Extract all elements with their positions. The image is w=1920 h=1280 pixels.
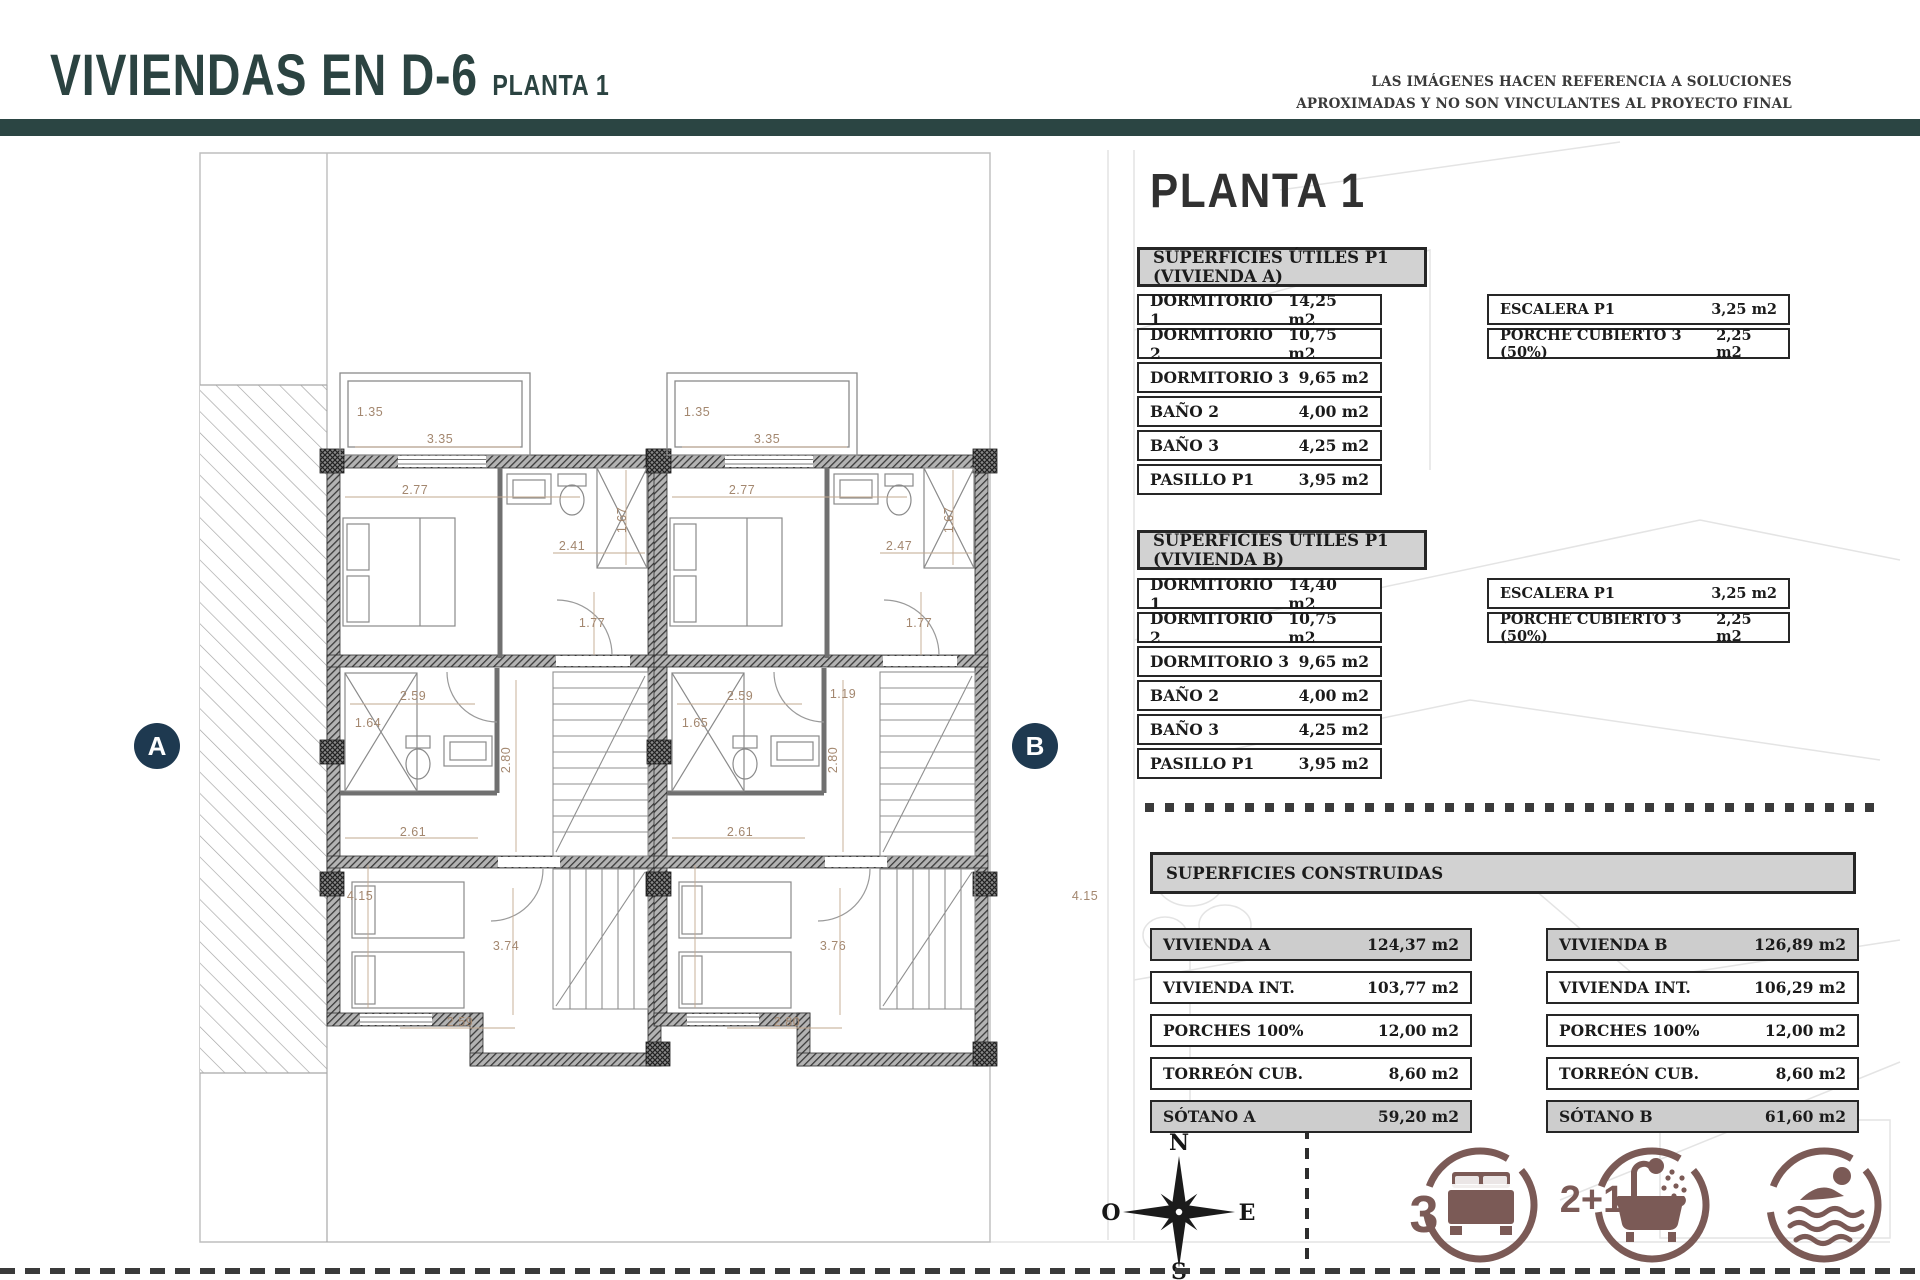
row-value: 9,65 m2: [1299, 652, 1369, 671]
table-row: DORMITORIO 2 10,75 m2: [1137, 328, 1382, 359]
row-label: VIVIENDA INT.: [1559, 978, 1691, 997]
table-row: PASILLO P1 3,95 m2: [1137, 748, 1382, 779]
svg-text:1.77: 1.77: [906, 616, 932, 630]
row-value: 4,25 m2: [1299, 436, 1369, 455]
row-label: DORMITORIO 1: [1150, 291, 1288, 329]
row-label: TORREÓN CUB.: [1559, 1064, 1699, 1083]
table-row: BAÑO 2 4,00 m2: [1137, 396, 1382, 427]
svg-text:2.59: 2.59: [447, 1015, 473, 1029]
table-a-side-rows: ESCALERA P1 3,25 m2 PORCHE CUBIERTO 3 (5…: [1487, 294, 1790, 362]
row-value: 4,25 m2: [1299, 720, 1369, 739]
row-value: 9,65 m2: [1299, 368, 1369, 387]
svg-text:1.67: 1.67: [942, 507, 956, 533]
table-row: VIVIENDA INT. 106,29 m2: [1546, 971, 1859, 1004]
row-label: SÓTANO A: [1163, 1107, 1256, 1126]
row-label: BAÑO 3: [1150, 436, 1219, 455]
table-row: BAÑO 2 4,00 m2: [1137, 680, 1382, 711]
bathrooms-count: 2+1: [1560, 1179, 1624, 1221]
svg-text:2.61: 2.61: [727, 825, 753, 839]
table-a-header: SUPERFICIES ÚTILES P1 (VIVIENDA A): [1137, 247, 1427, 287]
table-row: ESCALERA P1 3,25 m2: [1487, 294, 1790, 325]
slope-hatch-strip: [200, 385, 327, 1242]
svg-text:3.76: 3.76: [820, 939, 846, 953]
svg-text:B: B: [1026, 731, 1045, 761]
row-value: 10,75 m2: [1288, 325, 1369, 363]
row-label: PORCHE CUBIERTO 3 (50%): [1500, 611, 1716, 645]
row-label: VIVIENDA A: [1163, 935, 1270, 954]
row-label: VIVIENDA INT.: [1163, 978, 1295, 997]
row-value: 59,20 m2: [1378, 1107, 1459, 1126]
row-value: 3,25 m2: [1711, 585, 1777, 602]
svg-text:2.59: 2.59: [727, 689, 753, 703]
table-row: PORCHE CUBIERTO 3 (50%) 2,25 m2: [1487, 612, 1790, 643]
row-value: 14,40 m2: [1288, 575, 1369, 613]
svg-text:2.77: 2.77: [402, 483, 428, 497]
pool-icon: [1748, 1129, 1900, 1280]
table-row: PORCHE CUBIERTO 3 (50%) 2,25 m2: [1487, 328, 1790, 359]
row-label: PASILLO P1: [1150, 754, 1254, 773]
unit-marker-b: B: [1012, 723, 1058, 769]
row-value: 12,00 m2: [1378, 1021, 1459, 1040]
table-row: SÓTANO B 61,60 m2: [1546, 1100, 1859, 1133]
row-value: 8,60 m2: [1776, 1064, 1846, 1083]
svg-text:2.80: 2.80: [826, 747, 840, 773]
svg-text:2.47: 2.47: [886, 539, 912, 553]
compass-e: E: [1239, 1200, 1256, 1226]
table-row: DORMITORIO 2 10,75 m2: [1137, 612, 1382, 643]
table-row: DORMITORIO 1 14,25 m2: [1137, 294, 1382, 325]
table-b-header: SUPERFICIES ÚTILES P1 (VIVIENDA B): [1137, 530, 1427, 570]
row-value: 4,00 m2: [1299, 686, 1369, 705]
table-row: PASILLO P1 3,95 m2: [1137, 464, 1382, 495]
feature-icons: 3 2+1: [1404, 1129, 1900, 1280]
row-value: 3,95 m2: [1299, 754, 1369, 773]
svg-text:2.59: 2.59: [400, 689, 426, 703]
row-value: 106,29 m2: [1754, 978, 1846, 997]
table-a-rows: DORMITORIO 1 14,25 m2 DORMITORIO 2 10,75…: [1137, 294, 1382, 498]
table-row: DORMITORIO 1 14,40 m2: [1137, 578, 1382, 609]
row-value: 103,77 m2: [1367, 978, 1459, 997]
table-row: TORREÓN CUB. 8,60 m2: [1546, 1057, 1859, 1090]
row-label: SÓTANO B: [1559, 1107, 1653, 1126]
svg-text:2.80: 2.80: [774, 1015, 800, 1029]
svg-text:1.67: 1.67: [615, 507, 629, 533]
row-label: DORMITORIO 3: [1150, 368, 1289, 387]
row-value: 10,75 m2: [1288, 609, 1369, 647]
bedrooms-count: 3: [1410, 1186, 1439, 1244]
bathrooms-icon: 2+1: [1560, 1129, 1728, 1280]
svg-text:1.65: 1.65: [682, 716, 708, 730]
svg-text:4.15: 4.15: [1072, 889, 1098, 903]
built-areas-left-column: VIVIENDA A 124,37 m2 VIVIENDA INT. 103,7…: [1150, 928, 1472, 1143]
unit-marker-a: A: [134, 723, 180, 769]
row-label: PORCHES 100%: [1559, 1021, 1700, 1040]
table-row: TORREÓN CUB. 8,60 m2: [1150, 1057, 1472, 1090]
table-row: DORMITORIO 3 9,65 m2: [1137, 362, 1382, 393]
bedrooms-icon: 3: [1404, 1129, 1556, 1280]
row-value: 126,89 m2: [1754, 935, 1846, 954]
table-row: BAÑO 3 4,25 m2: [1137, 430, 1382, 461]
row-label: ESCALERA P1: [1500, 301, 1615, 318]
compass-w: O: [1101, 1200, 1120, 1226]
table-row: VIVIENDA INT. 103,77 m2: [1150, 971, 1472, 1004]
table-b-rows: DORMITORIO 1 14,40 m2 DORMITORIO 2 10,75…: [1137, 578, 1382, 782]
row-value: 3,25 m2: [1711, 301, 1777, 318]
row-value: 4,00 m2: [1299, 402, 1369, 421]
row-label: DORMITORIO 2: [1150, 325, 1288, 363]
row-label: BAÑO 3: [1150, 720, 1219, 739]
row-label: PORCHES 100%: [1163, 1021, 1304, 1040]
row-label: BAÑO 2: [1150, 402, 1219, 421]
table-row: PORCHES 100% 12,00 m2: [1546, 1014, 1859, 1047]
row-label: DORMITORIO 2: [1150, 609, 1288, 647]
svg-text:3.35: 3.35: [427, 432, 453, 446]
table-row: ESCALERA P1 3,25 m2: [1487, 578, 1790, 609]
dotted-divider: [1145, 803, 1878, 812]
table-row: VIVIENDA B 126,89 m2: [1546, 928, 1859, 961]
svg-text:2.80: 2.80: [499, 747, 513, 773]
row-value: 12,00 m2: [1765, 1021, 1846, 1040]
row-label: PASILLO P1: [1150, 470, 1254, 489]
row-label: DORMITORIO 3: [1150, 652, 1289, 671]
svg-text:4.15: 4.15: [347, 889, 373, 903]
row-label: ESCALERA P1: [1500, 585, 1615, 602]
row-label: DORMITORIO 1: [1150, 575, 1288, 613]
row-label: VIVIENDA B: [1559, 935, 1668, 954]
row-value: 3,95 m2: [1299, 470, 1369, 489]
svg-text:1.35: 1.35: [684, 405, 710, 419]
table-b-side-rows: ESCALERA P1 3,25 m2 PORCHE CUBIERTO 3 (5…: [1487, 578, 1790, 646]
row-value: 124,37 m2: [1367, 935, 1459, 954]
built-areas-right-column: VIVIENDA B 126,89 m2 VIVIENDA INT. 106,2…: [1546, 928, 1859, 1143]
svg-text:3.74: 3.74: [493, 939, 519, 953]
table-row: BAÑO 3 4,25 m2: [1137, 714, 1382, 745]
row-label: BAÑO 2: [1150, 686, 1219, 705]
row-label: TORREÓN CUB.: [1163, 1064, 1303, 1083]
compass-rose: N E S O: [1101, 1130, 1255, 1280]
row-value: 8,60 m2: [1389, 1064, 1459, 1083]
svg-text:2.41: 2.41: [559, 539, 585, 553]
svg-text:1.19: 1.19: [830, 687, 856, 701]
table-row: VIVIENDA A 124,37 m2: [1150, 928, 1472, 961]
table-row: DORMITORIO 3 9,65 m2: [1137, 646, 1382, 677]
built-areas-header: SUPERFICIES CONSTRUIDAS: [1150, 852, 1856, 894]
svg-text:1.64: 1.64: [355, 716, 381, 730]
panel-heading: PLANTA 1: [1150, 164, 1366, 219]
row-value: 2,25 m2: [1716, 611, 1777, 645]
row-label: PORCHE CUBIERTO 3 (50%): [1500, 327, 1716, 361]
table-row: PORCHES 100% 12,00 m2: [1150, 1014, 1472, 1047]
svg-text:A: A: [148, 731, 167, 761]
svg-text:1.77: 1.77: [579, 616, 605, 630]
row-value: 2,25 m2: [1716, 327, 1777, 361]
table-row: SÓTANO A 59,20 m2: [1150, 1100, 1472, 1133]
row-value: 14,25 m2: [1288, 291, 1369, 329]
svg-text:2.77: 2.77: [729, 483, 755, 497]
svg-text:3.35: 3.35: [754, 432, 780, 446]
svg-text:2.61: 2.61: [400, 825, 426, 839]
dimension-labels-unit-a: 1.35 3.35 2.77 2.41 1.67 1.77 2.59 1.64 …: [347, 405, 629, 1029]
svg-text:1.35: 1.35: [357, 405, 383, 419]
row-value: 61,60 m2: [1765, 1107, 1846, 1126]
